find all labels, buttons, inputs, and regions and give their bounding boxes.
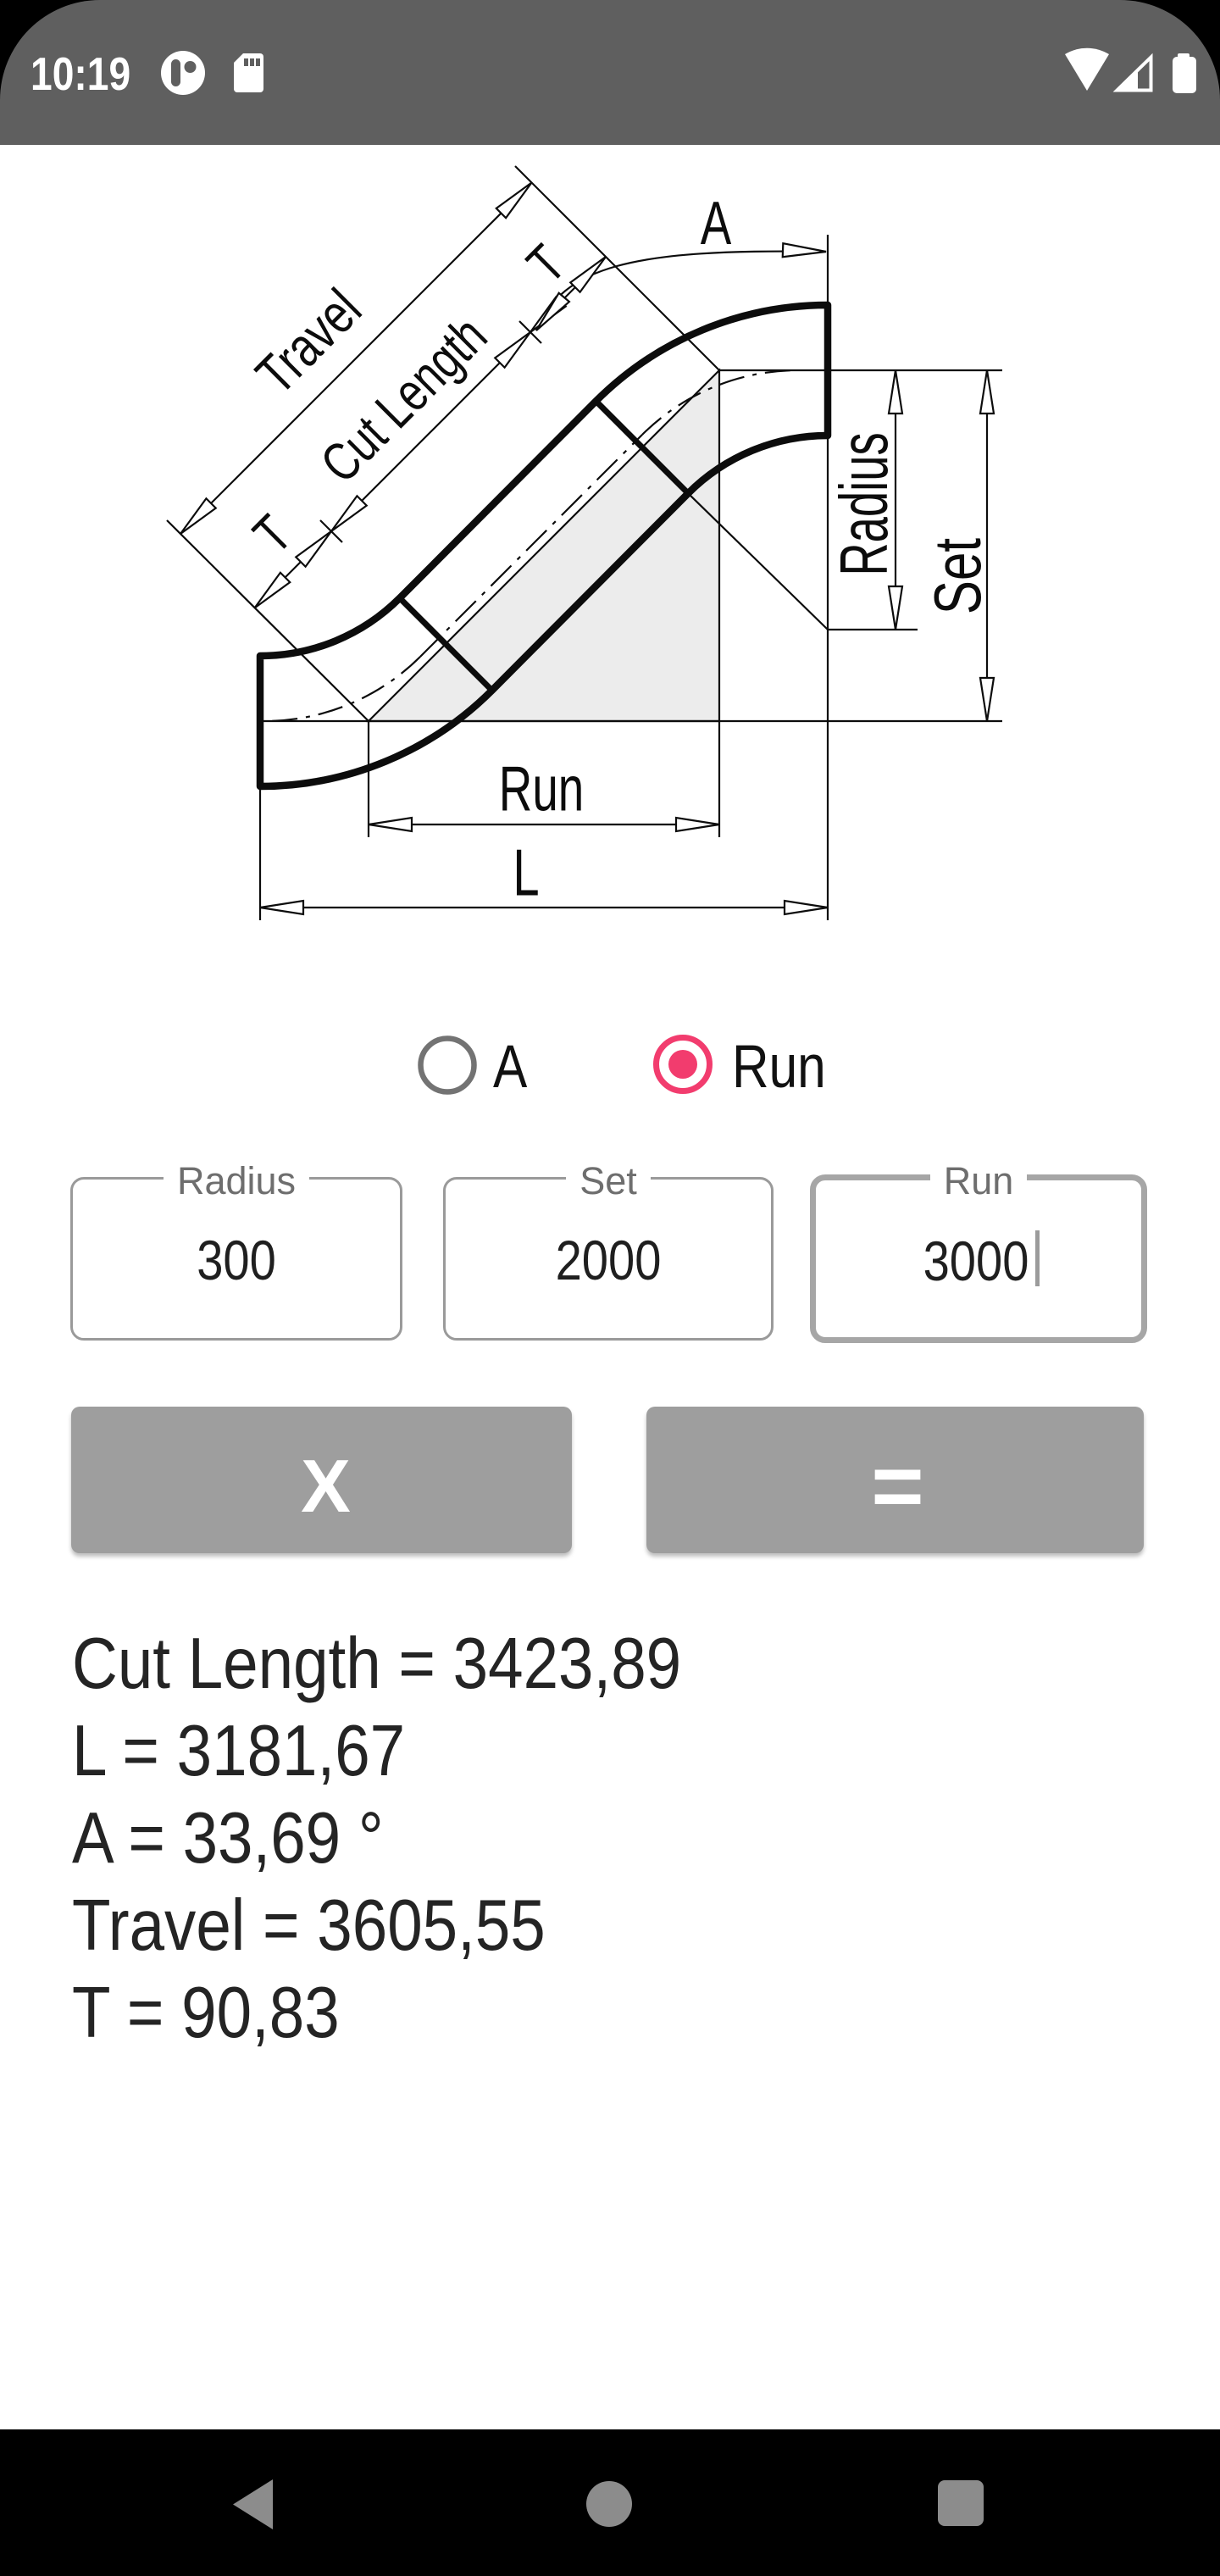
svg-text:Radius: Radius xyxy=(827,432,902,575)
svg-text:T: T xyxy=(242,504,303,565)
svg-text:Travel: Travel xyxy=(244,277,374,407)
svg-text:Set: Set xyxy=(920,538,994,614)
svg-text:Run: Run xyxy=(499,753,584,824)
svg-text:L: L xyxy=(513,836,539,909)
svg-text:T: T xyxy=(516,234,577,295)
svg-text:A: A xyxy=(701,188,732,257)
